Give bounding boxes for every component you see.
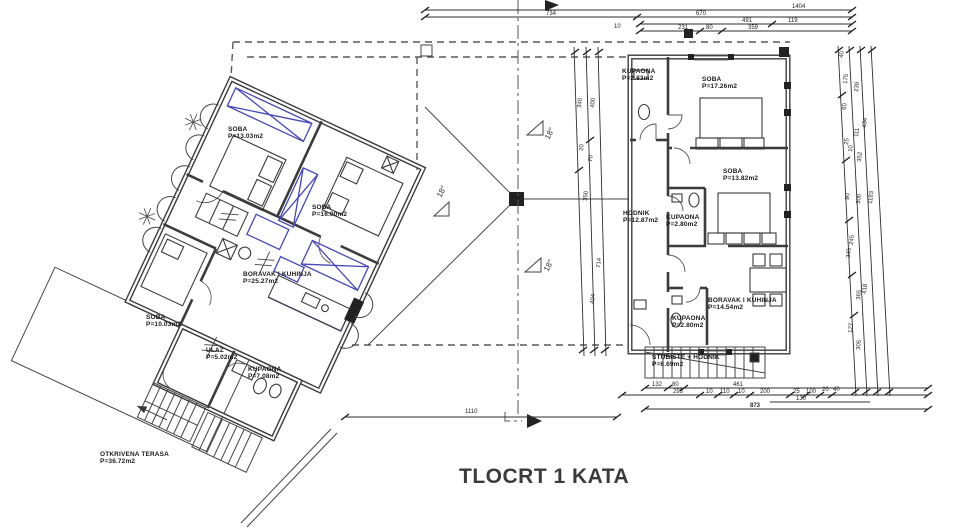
corner-block: [779, 47, 789, 57]
room-label-ulaz: ULAZP=5.02m2: [206, 347, 237, 362]
dim-label: 60: [842, 102, 849, 110]
roof-slope-markers: 18° 18° 18°: [434, 121, 556, 273]
dim-label: 714: [596, 257, 603, 268]
door-arcs: [630, 115, 700, 345]
dim-label: 40: [833, 387, 840, 393]
dim-label: 100: [806, 389, 817, 395]
dim-site: 1110: [465, 409, 478, 415]
dimension-chain-right: 40 175 239 434 60 111 25 10 352 90 300 1…: [835, 46, 893, 396]
dim-label: 25: [844, 137, 851, 145]
dim-label: 10: [848, 144, 855, 152]
dim-label: 70: [588, 154, 595, 162]
dim-label: 873: [750, 403, 761, 409]
dim-label: 10: [738, 389, 745, 395]
dim-label: 491: [742, 18, 753, 24]
dim-label: 80: [706, 25, 713, 31]
room-label-terasa: OTKRIVENA TERASAP=36.72m2: [100, 451, 169, 466]
window-block: [344, 298, 364, 324]
dimension-chain-bottom: 132 80 461 293 10 110 10 200 25 100 20 4…: [618, 382, 932, 412]
exterior-stair-rail: [241, 429, 337, 527]
drawing-title: TLOCRT 1 KATA: [459, 465, 629, 489]
section-marker-top-icon: [545, 0, 559, 11]
dim-label: 40: [839, 50, 846, 58]
dim-label: 345: [846, 247, 853, 258]
furniture-right: [634, 70, 786, 327]
dim-label: 200: [760, 389, 771, 395]
plan-canvas: 18° 18° 18° 1110: [0, 0, 960, 529]
dim-label: 90: [845, 192, 852, 200]
roof-slope-label: 18°: [543, 126, 557, 141]
dim-label: 130: [796, 396, 807, 402]
room-label-soba1: SOBAP=13.03m2: [228, 126, 263, 141]
dim-label: 359: [748, 25, 759, 31]
roof-slope-label: 18°: [542, 258, 556, 273]
room-label-kupaona-left: KUPAONAP=7.08m2: [248, 366, 281, 381]
dim-label: 25: [793, 389, 800, 395]
room-label-boravak-left: BORAVAK I KUHINJAP=25.27m2: [243, 271, 312, 286]
section-marker-bottom-icon: [527, 414, 542, 428]
dim-label: 110: [720, 389, 730, 395]
dim-label: 239: [854, 81, 861, 92]
dim-label: 127: [848, 322, 855, 333]
dim-label: 1404: [792, 4, 806, 10]
room-label-hodnik: HODNIKP=12.87m2: [623, 210, 658, 225]
room-label-soba2: SOBAP=16.00m2: [312, 204, 347, 219]
dim-label: 461: [733, 382, 744, 388]
dimension-chain-left: 340 400 20 70 350 714 404: [571, 47, 609, 356]
dim-label: 352: [857, 151, 864, 162]
dim-label: 293: [673, 389, 684, 395]
left-building: [11, 45, 435, 491]
dim-label: 119: [788, 18, 798, 24]
dim-label: 10: [614, 24, 621, 30]
room-label-kupaona-r2: KUPAONAP=2.80m2: [666, 214, 699, 229]
dim-label: 80: [672, 382, 679, 388]
dim-label: 20: [822, 387, 829, 393]
dim-label: 305: [856, 339, 863, 350]
dim-label: 670: [696, 11, 707, 17]
room-label-boravak-right: BORAVAK I KUHINJAP=14.54m2: [708, 297, 777, 312]
dim-label: 340: [577, 97, 584, 108]
chimney-block: [509, 192, 524, 206]
vent-block: [684, 29, 693, 38]
floor-plan-drawing: 18° 18° 18° 1110: [0, 0, 960, 529]
room-label-soba3: SOBAP=10.03m2: [146, 314, 181, 329]
dim-label: 10: [706, 389, 713, 395]
room-label-soba-r2: SOBAP=13.82m2: [723, 168, 758, 183]
dim-label: 1183: [868, 190, 875, 204]
dim-label: 400: [590, 97, 597, 108]
dim-label: 132: [652, 382, 663, 388]
dim-label: 300: [856, 193, 863, 204]
dim-label: 175: [843, 73, 850, 84]
dim-label: 404: [590, 293, 597, 304]
dim-label: 734: [546, 11, 557, 17]
dim-label: 111: [854, 127, 861, 137]
room-label-stubiste: STUBIŠTE + HODNIKP=6.69m2: [652, 354, 720, 369]
dim-label: 245: [849, 234, 856, 245]
dim-label: 434: [862, 117, 869, 128]
dim-label: 350: [583, 190, 590, 201]
dim-label: 365: [856, 289, 863, 300]
dim-label: 20: [579, 143, 586, 151]
room-label-soba-r1: SOBAP=17.26m2: [702, 76, 737, 91]
dimension-chain-top: 1404 734 670 491 119 231 80 359 10: [421, 4, 856, 38]
room-label-kupaona-r1: KUPAONAP=2.83m2: [622, 68, 655, 83]
dim-label: 418: [862, 283, 869, 294]
roof-slope-label: 18°: [435, 184, 449, 199]
room-label-kupaona-r3: KUPAONAP=2.80m2: [672, 315, 705, 330]
